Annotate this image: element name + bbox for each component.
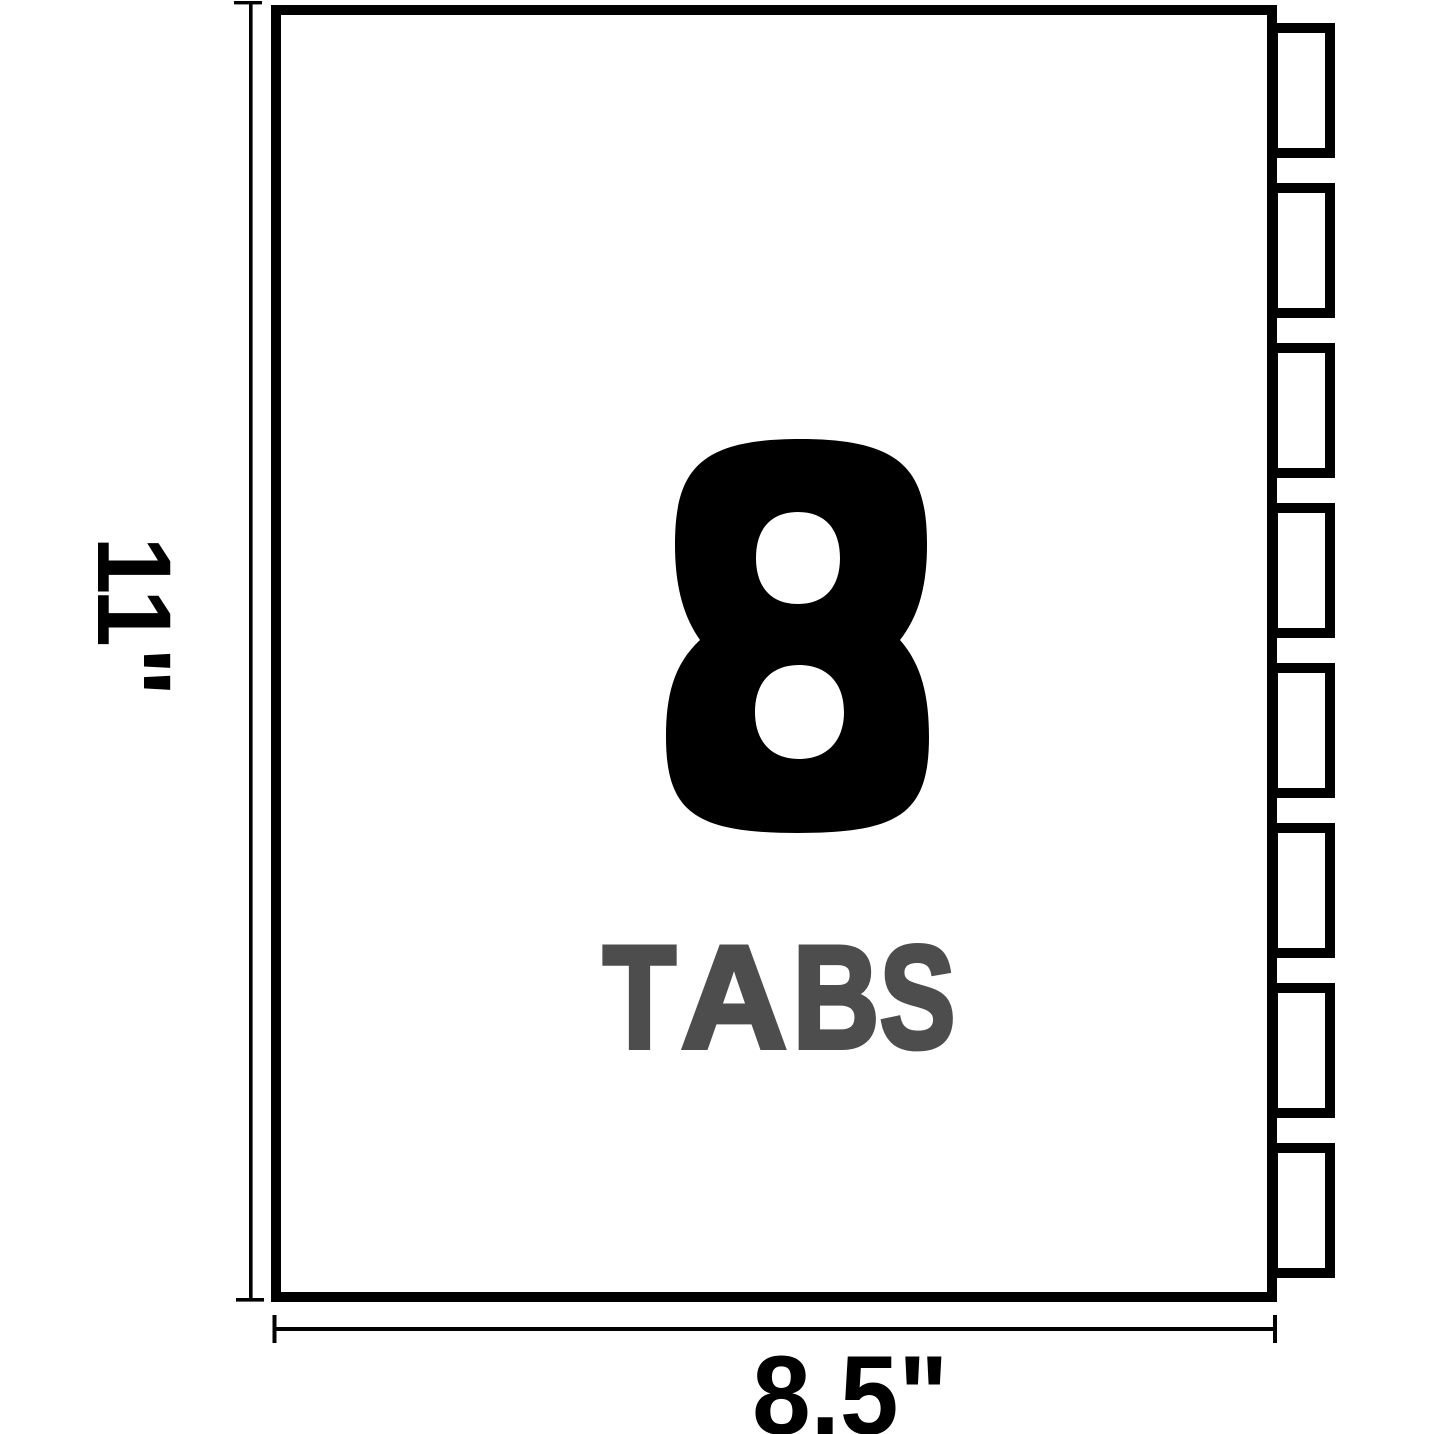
svg-text:11": 11" <box>75 536 192 697</box>
svg-text:B: B <box>793 916 880 1079</box>
svg-text:A: A <box>681 916 787 1079</box>
svg-text:T: T <box>603 916 676 1079</box>
svg-text:8.5": 8.5" <box>752 1334 948 1434</box>
svg-text:S: S <box>880 916 956 1079</box>
